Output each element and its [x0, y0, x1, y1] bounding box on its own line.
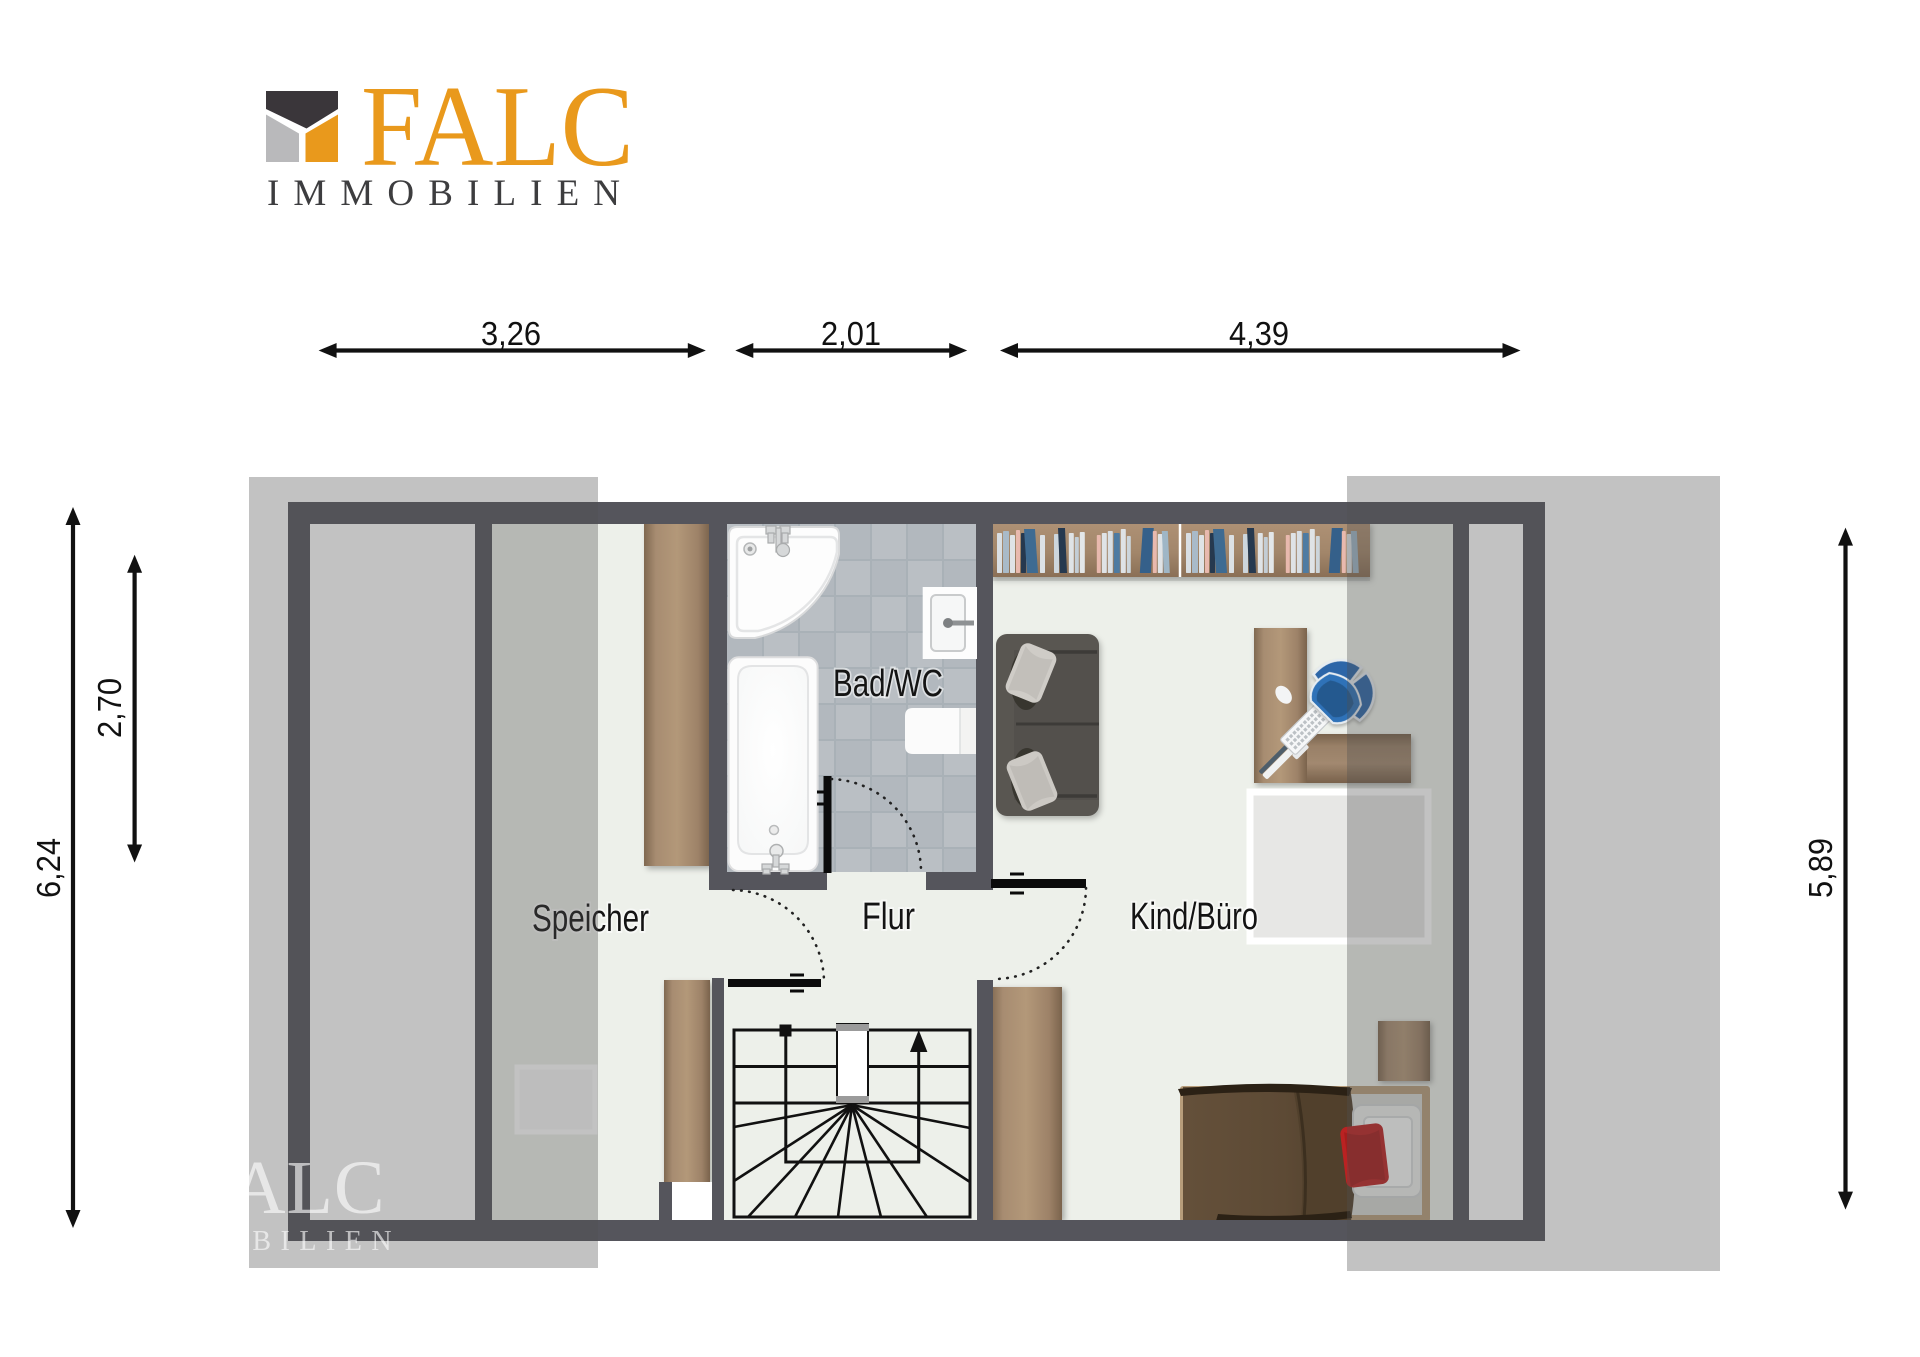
- svg-text:Kind/Büro: Kind/Büro: [1130, 896, 1258, 938]
- svg-text:2,01: 2,01: [821, 315, 881, 352]
- svg-text:FALC: FALC: [361, 63, 634, 191]
- svg-text:2,70: 2,70: [91, 678, 128, 738]
- svg-text:IMMOBILIEN: IMMOBILIEN: [135, 1226, 401, 1257]
- svg-text:5,89: 5,89: [1802, 838, 1839, 898]
- svg-text:Bad/WC: Bad/WC: [833, 663, 943, 705]
- svg-text:IMMOBILIEN: IMMOBILIEN: [267, 173, 634, 214]
- svg-text:FALC: FALC: [193, 1146, 386, 1230]
- svg-text:3,26: 3,26: [481, 315, 541, 352]
- svg-text:6,24: 6,24: [30, 838, 67, 898]
- svg-text:4,39: 4,39: [1229, 315, 1289, 352]
- svg-text:Flur: Flur: [862, 896, 915, 938]
